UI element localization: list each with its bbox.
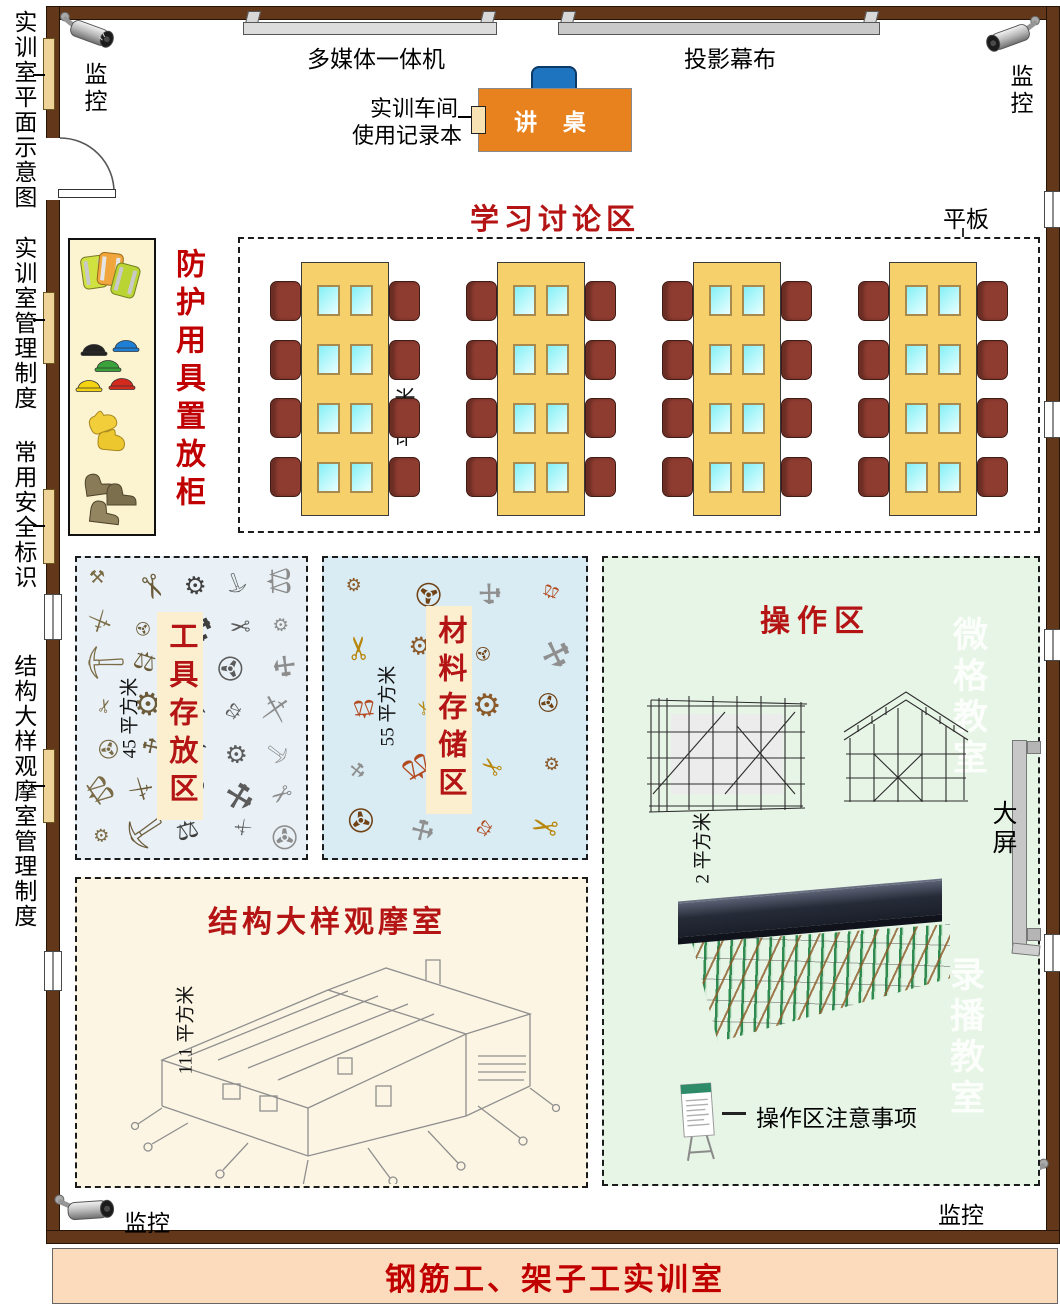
- chair: [662, 457, 693, 497]
- logbook-label-line2: 使用记录本: [352, 122, 458, 149]
- monitor-label: 监控: [76, 62, 110, 116]
- observation-rules-label: 结构大样观摩室管理制度: [10, 654, 35, 929]
- tool-icon: ⚔: [125, 773, 158, 805]
- table: [889, 262, 977, 516]
- tablet: [546, 344, 569, 375]
- chair: [466, 281, 497, 321]
- chair-column: [662, 281, 693, 497]
- tablet: [350, 403, 373, 434]
- tool-icon: ✂: [132, 568, 172, 605]
- logbook-icon: [471, 106, 486, 134]
- structure-area-size: 111 平方米: [171, 986, 198, 1075]
- window: [1044, 401, 1060, 438]
- window: [1044, 934, 1060, 972]
- tool-icon: ⛏: [223, 570, 251, 595]
- chair: [977, 457, 1008, 497]
- safety-vests-icon: [80, 252, 141, 299]
- safety-signs-label: 常用安全标识: [10, 440, 35, 590]
- window: [1044, 191, 1060, 228]
- chair: [662, 281, 693, 321]
- tablet: [938, 403, 961, 434]
- window: [44, 594, 62, 640]
- tablet: [546, 462, 569, 493]
- table-group: [858, 262, 1008, 516]
- tablet: [513, 285, 536, 316]
- helmets-icon: [76, 341, 139, 392]
- material-icon: ⚖: [472, 816, 496, 840]
- training-room-floor-plan: 实训室平面示意图 实训室管理制度 常用安全标识 结构大样观摩室管理制度 监控 监…: [0, 0, 1060, 1311]
- big-screen-bracket: [1027, 928, 1041, 941]
- gloves-icon: [87, 408, 127, 454]
- chair: [662, 398, 693, 438]
- table-group: [662, 262, 812, 516]
- tool-icon: ⚙: [178, 568, 212, 601]
- watermark-bottom: 录播教室: [939, 956, 990, 1120]
- tablet: [938, 344, 961, 375]
- boots-icon: [84, 471, 136, 524]
- window: [44, 951, 62, 991]
- chair-column: [389, 281, 420, 497]
- tools-zone-title: 工具存放区: [157, 612, 203, 820]
- material-icon: ⚒: [346, 761, 366, 779]
- logbook-label-line1: 实训车间: [352, 95, 458, 122]
- discussion-zone: 平方米: [238, 237, 1040, 533]
- tablet: [938, 462, 961, 493]
- chair: [858, 457, 889, 497]
- tablet: [317, 403, 340, 434]
- table: [301, 262, 389, 516]
- tool-icon: ⚔: [85, 604, 116, 636]
- chair-column: [270, 281, 301, 497]
- chair: [977, 398, 1008, 438]
- tool-icon: ✂: [228, 612, 251, 638]
- structure-zone-title: 结构大样观摩室: [208, 897, 446, 941]
- tablet: [905, 344, 928, 375]
- chair: [585, 281, 616, 321]
- table: [497, 262, 585, 516]
- tablet: [742, 462, 765, 493]
- camera-icon: [58, 8, 120, 60]
- tool-icon: ✇: [263, 818, 302, 854]
- tablet: [742, 403, 765, 434]
- door-leaf-icon: [58, 189, 116, 198]
- label-connector: [458, 116, 471, 118]
- chair: [585, 457, 616, 497]
- tablet: [513, 344, 536, 375]
- material-icon: ✇: [470, 643, 493, 666]
- label-connector: [722, 1112, 746, 1115]
- plan-title: 实训室平面示意图: [10, 10, 35, 210]
- chair: [270, 281, 301, 321]
- chair: [781, 457, 812, 497]
- big-screen-label: 大屏: [984, 800, 1020, 858]
- tool-icon: ⛏: [265, 741, 291, 763]
- tablet: [905, 403, 928, 434]
- operation-zone-title: 操作区: [760, 596, 871, 640]
- material-icon: ✇: [535, 688, 562, 718]
- tool-icon: ⚒: [268, 650, 301, 684]
- notice-label: 操作区注意事项: [756, 1099, 917, 1133]
- material-icon: ⚖: [540, 580, 562, 603]
- material-icon: ✇: [345, 803, 376, 838]
- tablet: [546, 285, 569, 316]
- tablet: [317, 285, 340, 316]
- tablet: [709, 285, 732, 316]
- material-icon: ⚒: [536, 634, 576, 672]
- chair: [466, 340, 497, 380]
- tool-icon: ⚙: [91, 822, 114, 846]
- discussion-title: 学习讨论区: [470, 196, 640, 238]
- wall-bottom: [46, 1230, 1060, 1244]
- chair: [585, 398, 616, 438]
- tablet: [709, 403, 732, 434]
- tool-icon: ⚙: [270, 612, 293, 635]
- tablet: [513, 403, 536, 434]
- scaffold-sketch-icon: [836, 680, 976, 814]
- table-group: [466, 262, 616, 516]
- tables-row: [240, 239, 1038, 531]
- chair-column: [858, 281, 889, 497]
- tablet: [350, 344, 373, 375]
- tablet: [546, 403, 569, 434]
- chair: [270, 398, 301, 438]
- chair: [466, 398, 497, 438]
- material-icon: ⚒: [473, 576, 507, 609]
- wall-board: [43, 292, 55, 364]
- tablet: [317, 344, 340, 375]
- monitor-label: 监控: [124, 1204, 170, 1238]
- chair: [977, 281, 1008, 321]
- chair-column: [781, 281, 812, 497]
- podium-label: 讲 桌: [514, 103, 596, 137]
- chair: [585, 340, 616, 380]
- tablet: [742, 285, 765, 316]
- tool-icon: ⚔: [230, 816, 254, 840]
- chair: [977, 340, 1008, 380]
- projector-screen: [558, 22, 880, 35]
- materials-zone-title: 材料存储区: [426, 606, 472, 814]
- chair: [781, 398, 812, 438]
- chair: [466, 457, 497, 497]
- tablet: [513, 462, 536, 493]
- ppe-cabinet-title: 防护用具置放柜: [165, 248, 209, 514]
- tablet: [317, 462, 340, 493]
- chair: [389, 340, 420, 380]
- table: [693, 262, 781, 516]
- multimedia-label: 多媒体一体机: [307, 40, 445, 74]
- table-group: [270, 262, 420, 516]
- logbook-label: 实训车间 使用记录本: [352, 95, 458, 149]
- tablet: [709, 462, 732, 493]
- tool-icon: ⚔: [257, 690, 292, 728]
- tablet: [905, 285, 928, 316]
- tablet: [350, 462, 373, 493]
- tablet: [905, 462, 928, 493]
- chair: [781, 281, 812, 321]
- room-name-banner: 钢筋工、架子工实训室: [52, 1248, 1058, 1304]
- room-rules-label: 实训室管理制度: [10, 236, 35, 411]
- scaffold-sketch-icon: [643, 686, 811, 818]
- material-icon: ✂: [476, 750, 508, 783]
- chair: [270, 340, 301, 380]
- room-name: 钢筋工、架子工实训室: [385, 1254, 725, 1299]
- chair-column: [466, 281, 497, 497]
- material-icon: ✂: [342, 634, 375, 662]
- chair: [389, 281, 420, 321]
- multimedia-board: [243, 22, 497, 35]
- chair: [389, 457, 420, 497]
- camera-icon: [980, 12, 1042, 64]
- chair-column: [585, 281, 616, 497]
- tool-icon: ⚖: [221, 699, 245, 723]
- tool-icon: ⚖: [262, 566, 295, 596]
- tools-area-size: 45 平方米: [115, 678, 142, 759]
- chair-column: [977, 281, 1008, 497]
- tablet: [709, 344, 732, 375]
- tool-icon: ✂: [265, 778, 297, 811]
- material-icon: ⚙: [346, 577, 362, 595]
- materials-area-size: 55 平方米: [373, 666, 400, 747]
- ppe-contents-icon: [72, 242, 152, 532]
- chair: [858, 340, 889, 380]
- chair: [662, 340, 693, 380]
- chair: [270, 457, 301, 497]
- projector-screen-label: 投影幕布: [684, 40, 776, 74]
- tool-icon: ⚙: [221, 740, 250, 767]
- tool-icon: ⚒: [89, 569, 105, 587]
- chair: [858, 398, 889, 438]
- tool-icon: ✇: [210, 648, 249, 689]
- chair: [389, 398, 420, 438]
- tablet: [350, 285, 373, 316]
- tool-icon: ⚖: [131, 646, 160, 676]
- material-icon: ⚙: [542, 754, 564, 774]
- chair: [858, 281, 889, 321]
- material-icon: ⚒: [406, 814, 439, 846]
- window: [1044, 629, 1060, 661]
- notice-sign-icon: [676, 1078, 720, 1162]
- tool-icon: ✇: [131, 618, 154, 641]
- monitor-label: 监控: [1002, 64, 1036, 118]
- door-swing-arc-icon: [58, 136, 120, 196]
- tablet: [742, 344, 765, 375]
- chair: [781, 340, 812, 380]
- podium: 讲 桌: [478, 88, 632, 152]
- wall-top: [46, 6, 1060, 20]
- material-icon: ✂: [529, 807, 562, 844]
- tool-icon: ⚖: [81, 770, 120, 812]
- tablet: [938, 285, 961, 316]
- big-screen-bracket: [1027, 741, 1041, 754]
- monitor-label: 监控: [938, 1196, 984, 1230]
- tool-icon: ⚒: [220, 779, 258, 815]
- operation-area-size: 2 平方米: [688, 812, 715, 883]
- tablet-label: 平板: [943, 200, 989, 234]
